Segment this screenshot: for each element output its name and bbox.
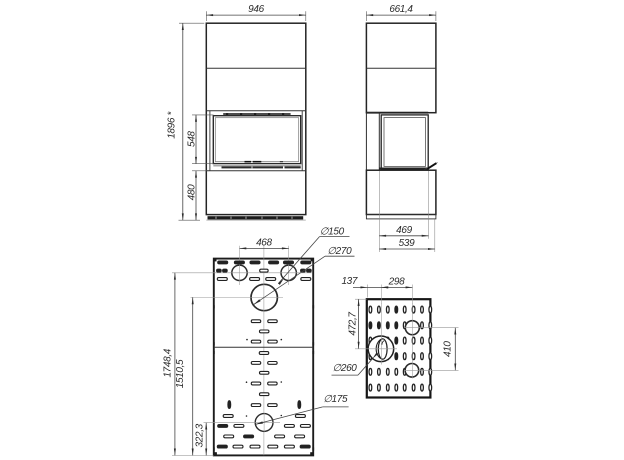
svg-text:298: 298: [388, 277, 405, 288]
svg-text:469: 469: [396, 225, 412, 236]
svg-text:1510,5: 1510,5: [175, 359, 186, 388]
svg-text:137: 137: [341, 276, 357, 287]
svg-text:661,4: 661,4: [389, 4, 413, 15]
svg-text:∅260: ∅260: [333, 363, 358, 374]
svg-text:∅150: ∅150: [320, 227, 345, 238]
svg-text:472,7: 472,7: [348, 312, 359, 336]
svg-text:480: 480: [186, 184, 197, 200]
svg-text:∅270: ∅270: [327, 246, 352, 257]
svg-text:946: 946: [248, 4, 264, 15]
svg-text:410: 410: [443, 341, 454, 357]
svg-text:548: 548: [186, 131, 197, 147]
svg-text:∅175: ∅175: [323, 394, 348, 405]
svg-text:468: 468: [256, 237, 272, 248]
svg-text:1748,4: 1748,4: [163, 348, 174, 377]
svg-text:1896 *: 1896 *: [167, 111, 178, 139]
svg-text:539: 539: [399, 238, 415, 249]
svg-text:322,3: 322,3: [194, 423, 205, 447]
